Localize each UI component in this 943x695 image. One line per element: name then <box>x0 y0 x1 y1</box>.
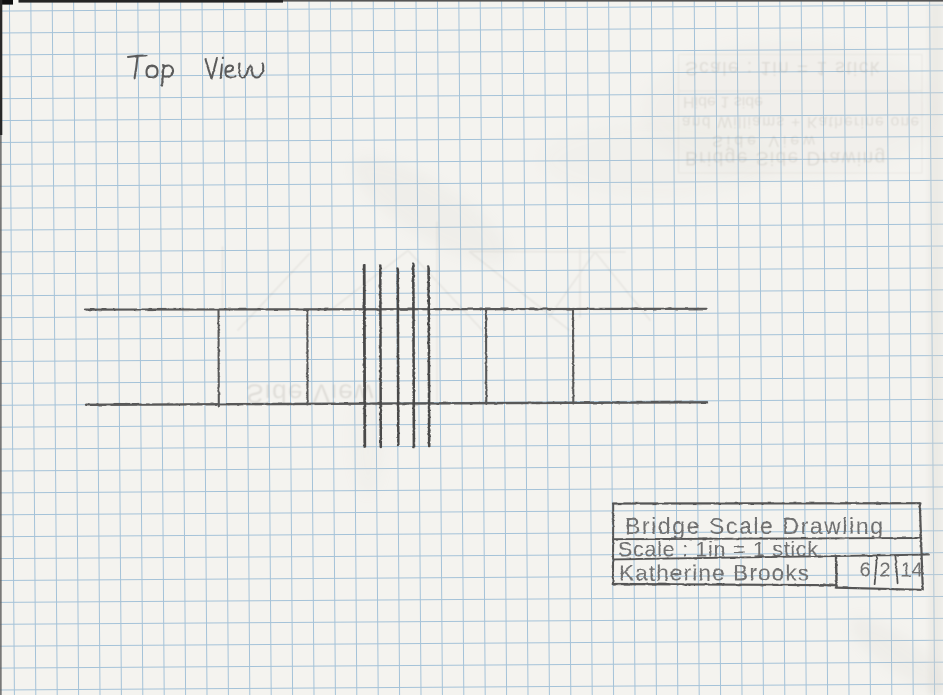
svg-text:Side View: Side View <box>712 132 819 149</box>
svg-text:Hide 1 side: Hide 1 side <box>683 93 763 110</box>
svg-text:Scale : 1in = 1 stick: Scale : 1in = 1 stick <box>618 538 818 562</box>
svg-text:6: 6 <box>860 560 871 582</box>
svg-text:Bridge Scale Drawling: Bridge Scale Drawling <box>625 513 883 539</box>
svg-text:Bridge Side Drawing: Bridge Side Drawing <box>685 147 887 168</box>
svg-text:Katherine Brooks: Katherine Brooks <box>619 561 809 586</box>
svg-text:Scale : 1in = 1 stick: Scale : 1in = 1 stick <box>685 57 881 78</box>
svg-text:and Williams + Katherine one: and Williams + Katherine one <box>682 113 920 130</box>
svg-text:2: 2 <box>880 560 891 582</box>
svg-text:14: 14 <box>901 560 923 582</box>
